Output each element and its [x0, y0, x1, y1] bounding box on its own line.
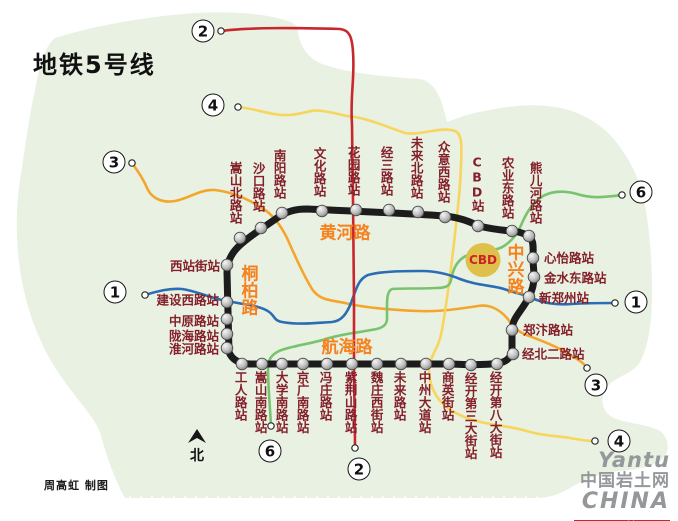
road-label-hanghai: 航海路 [322, 333, 373, 358]
station-bubble [523, 230, 535, 242]
station-bubble [507, 348, 519, 360]
station-label: 经开第三大街站 [463, 372, 476, 460]
station-bubble [255, 222, 267, 234]
station-bubble [346, 358, 358, 370]
station-bubble [528, 271, 540, 283]
station-label: 文化路站 [312, 147, 325, 197]
station-bubble [523, 291, 535, 303]
station-label: 建设西路站 [156, 293, 219, 306]
cbd-label: CBD [469, 253, 497, 267]
station-label: 南阳路站 [272, 149, 285, 199]
station-bubble [527, 252, 539, 264]
station-bubble [465, 359, 477, 371]
line-terminal-dot [218, 28, 224, 34]
station-bubble [221, 313, 233, 325]
road-label-huanghe: 黄河路 [320, 219, 371, 244]
station-label: 嵩山南路站 [253, 371, 266, 434]
station-bubble [276, 358, 288, 370]
line-number-badge: 6 [630, 181, 653, 204]
line-number-badge: 2 [192, 20, 215, 43]
station-bubble [221, 296, 233, 308]
station-label: 经北二路站 [522, 347, 585, 360]
line-terminal-dot [352, 445, 358, 451]
station-label: 京广南路站 [295, 371, 308, 434]
station-bubble [371, 358, 383, 370]
station-bubble [472, 220, 484, 232]
station-label: 农业东路站 [500, 157, 513, 220]
station-bubble [439, 211, 451, 223]
station-bubble [506, 324, 518, 336]
station-label: 冯庄路站 [318, 371, 331, 421]
station-label: 新郑州站 [539, 291, 589, 304]
station-label: 工人路站 [233, 371, 246, 421]
line-number-badge: 3 [103, 151, 126, 174]
line-terminal-dot [235, 104, 241, 110]
line-terminal-dot [584, 365, 590, 371]
logo-word-china: CHINA [574, 491, 670, 513]
line-terminal-dot [612, 300, 618, 306]
station-label: 金水东路站 [544, 271, 607, 284]
station-bubble [383, 204, 395, 216]
station-label: 大学南路站 [274, 371, 287, 434]
station-label: 经三路站 [379, 146, 392, 196]
station-bubble [221, 328, 233, 340]
line-terminal-dot [592, 438, 598, 444]
station-label: 花园路站 [346, 146, 359, 196]
station-label: 西站街站 [170, 259, 220, 272]
line-terminal-dot [129, 160, 135, 166]
station-label: 未来北路站 [409, 137, 422, 200]
station-label: 紫荆山路站 [343, 371, 356, 434]
line-number-badge: 3 [585, 374, 608, 397]
station-label: 中原路站 [169, 314, 219, 327]
station-bubble [234, 232, 246, 244]
line-number-badge: 6 [259, 440, 282, 463]
station-label: 众意西路站 [436, 141, 449, 204]
station-bubble [236, 358, 248, 370]
line-number-badge: 2 [348, 458, 371, 481]
station-bubble [256, 358, 268, 370]
station-bubble [297, 358, 309, 370]
station-bubble [506, 225, 518, 237]
station-label: 淮河路站 [169, 342, 219, 355]
station-bubble [412, 206, 424, 218]
station-label: 商英街站 [440, 371, 453, 421]
station-bubble [316, 205, 328, 217]
page-title: 地铁5号线 [33, 45, 156, 80]
station-bubble [443, 358, 455, 370]
station-bubble [491, 358, 503, 370]
line-terminal-dot [619, 192, 625, 198]
station-label: 中州大道站 [417, 371, 430, 434]
station-label: 嵩山北路站 [228, 162, 241, 225]
metro-line5-map: 地铁5号线 黄河路 航海路 桐柏路 中兴路 CBD 文化路站花园路站经三路站未来… [0, 0, 678, 521]
station-label: 沙口路站 [251, 162, 264, 212]
station-label: 郑汴路站 [523, 323, 573, 336]
line-terminal-dot [142, 292, 148, 298]
station-label: 经开第八大街站 [488, 371, 501, 459]
road-label-zhongxing: 中兴路 [505, 244, 522, 295]
logo-word-cn: 中国岩土网 [574, 473, 670, 490]
yantu-logo: Yantu 中国岩土网 CHINA www.yantuchina.com [574, 450, 670, 521]
station-bubble [221, 259, 233, 271]
station-bubble [350, 204, 362, 216]
line-number-badge: 4 [202, 94, 225, 117]
cartographer-credit: 周高虹 制图 [44, 477, 109, 493]
station-label: 熊儿河路站 [528, 162, 541, 225]
line-number-badge: 1 [104, 281, 127, 304]
station-label: 未来路站 [392, 371, 405, 421]
road-label-tongbai: 桐柏路 [239, 265, 256, 316]
station-bubble [420, 358, 432, 370]
station-label: CBD站 [470, 155, 483, 213]
logo-word-yantu: Yantu [574, 450, 670, 471]
station-label: 魏庄西街站 [369, 371, 382, 434]
station-bubble [395, 358, 407, 370]
station-label: 心怡路站 [544, 251, 594, 264]
line-number-badge: 1 [625, 291, 648, 314]
station-bubble [321, 358, 333, 370]
north-label: 北 [190, 445, 204, 465]
station-bubble [276, 207, 288, 219]
station-bubble [221, 342, 233, 354]
